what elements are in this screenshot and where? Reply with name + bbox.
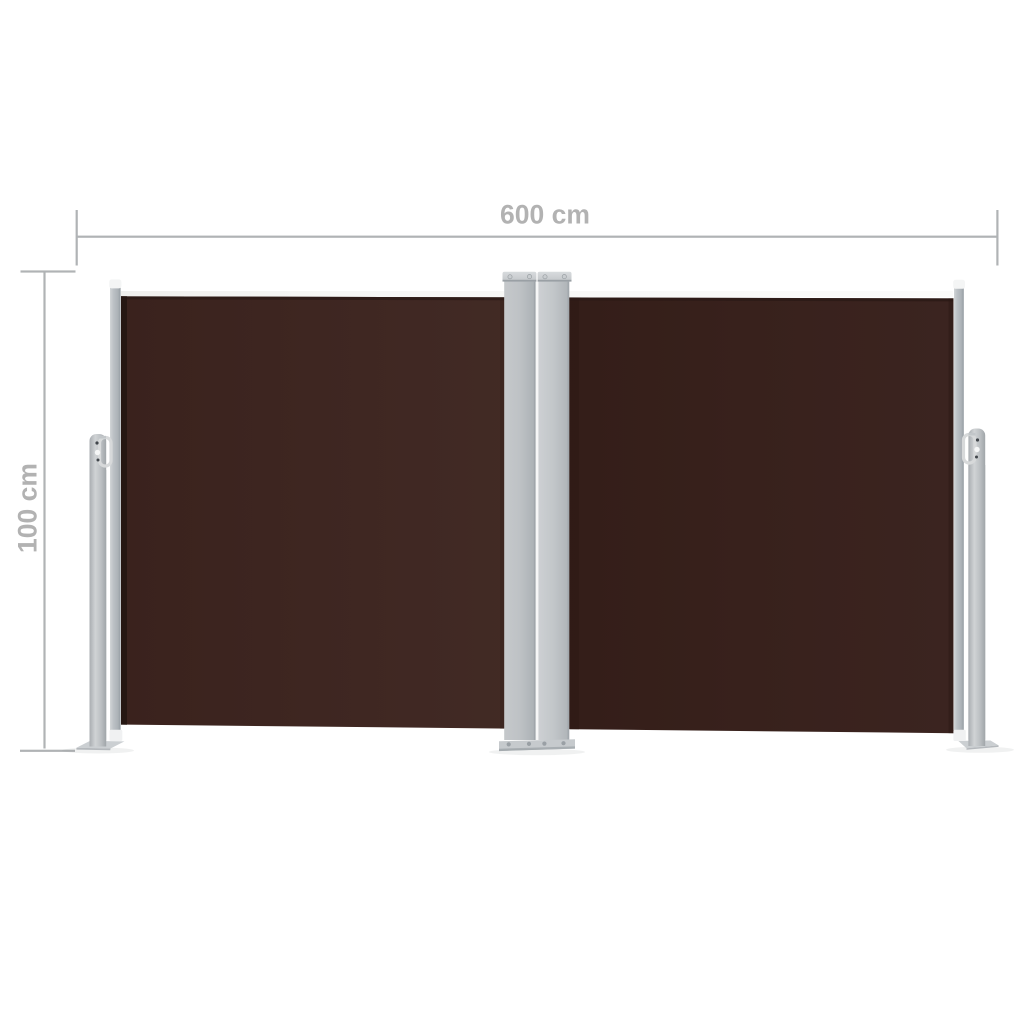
svg-text:100 cm: 100 cm (13, 463, 43, 553)
svg-text:600 cm: 600 cm (500, 199, 590, 229)
